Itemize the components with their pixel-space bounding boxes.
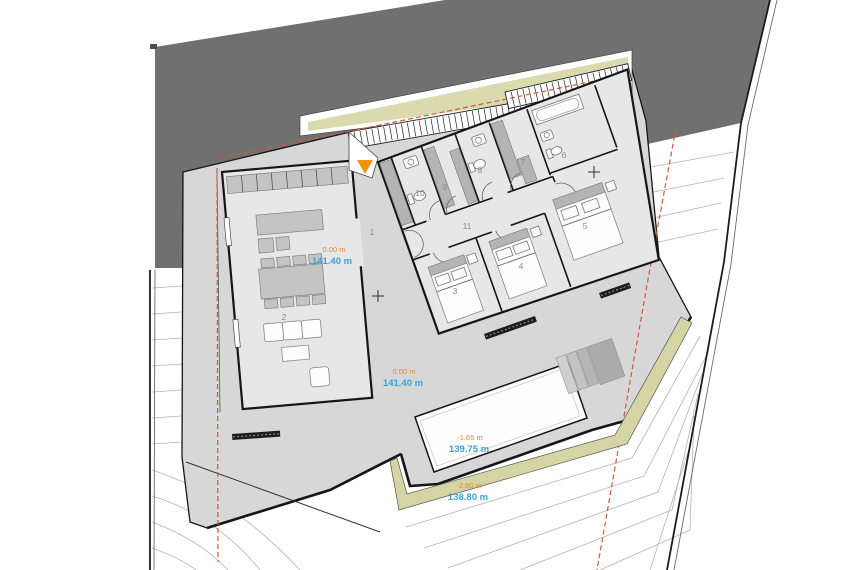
room-label-8: 8	[478, 165, 483, 175]
kitchen-living-block	[220, 160, 375, 409]
room-label-9: 9	[443, 182, 448, 192]
room-label-7: 7	[521, 157, 526, 167]
level-abs-terrace: 141.40 m	[383, 378, 423, 389]
room-label-3: 3	[453, 286, 458, 296]
room-label-4: 4	[519, 261, 524, 271]
level-delta-pool: -1.65 m	[457, 433, 482, 442]
room-label-2: 2	[282, 312, 287, 322]
level-abs-walkway: 138.80 m	[448, 492, 488, 503]
floor-plan-svg: 1 2 3 4 5 6 7 8 9 10 11 0.00 m 141.40 m …	[0, 0, 850, 570]
level-delta-terrace: 0.00 m	[393, 367, 416, 376]
room-label-10: 10	[415, 188, 425, 198]
room-label-5: 5	[583, 221, 588, 231]
road-corner-mark	[150, 44, 157, 49]
room-label-11: 11	[463, 221, 472, 231]
room-label-6: 6	[562, 150, 567, 160]
level-delta-main: 0.00 m	[323, 245, 346, 254]
level-abs-main: 141.40 m	[312, 256, 352, 267]
site-plan-page: 1 2 3 4 5 6 7 8 9 10 11 0.00 m 141.40 m …	[0, 0, 850, 570]
level-delta-walkway: -2.60 m	[456, 481, 481, 490]
room-label-1: 1	[370, 227, 375, 237]
level-abs-pool: 139.75 m	[449, 444, 489, 455]
